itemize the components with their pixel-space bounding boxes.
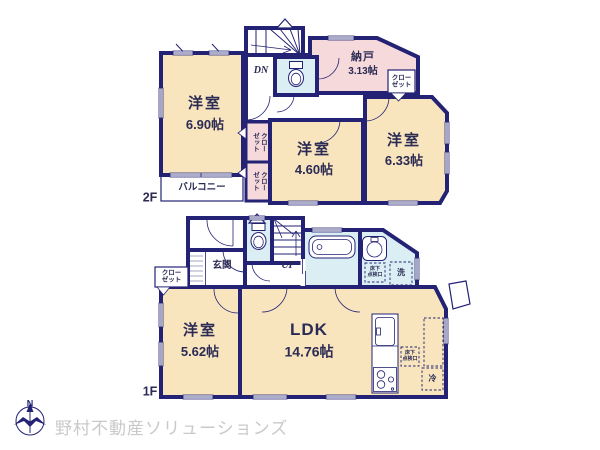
hatch-ldk-line2: 点検口: [402, 356, 417, 362]
floor-label-1f: 1F: [143, 385, 158, 398]
room-label-ldk: LDK: [290, 321, 328, 339]
bathtub-icon: [309, 236, 355, 258]
closet-label-2f-b: クロー ゼット: [251, 171, 266, 191]
bedroom-633: [365, 97, 447, 203]
washbasin-icon: [363, 237, 387, 261]
room-label-2f-yoshitsu-460: 洋室: [297, 142, 331, 158]
compass-north-label: N: [27, 399, 34, 408]
ldk-room: [240, 287, 446, 397]
closet-a-line1: クロー: [259, 132, 266, 152]
company-logo-text: 野村不動産ソリューションズ: [55, 414, 288, 439]
genkan-label: 玄関: [212, 261, 231, 271]
closet-b-line1: クロー: [259, 171, 266, 191]
room-size-2f-yoshitsu-460: 4.60帖: [295, 163, 333, 177]
balcony-label: バルコニー: [178, 183, 225, 193]
door-fold-marker-stairs-2f: [277, 19, 293, 28]
room-size-nando: 3.13帖: [348, 67, 377, 78]
exterior-door-leaf: [449, 281, 470, 309]
closet-a-line2: ゼット: [251, 132, 258, 152]
hatch-washroom-line2: 点検口: [367, 272, 382, 278]
laundry-label: 洗: [397, 269, 405, 277]
entrance-porch: [188, 218, 245, 250]
closet-label-2f-right: クロー ゼット: [392, 74, 412, 89]
hall-1f: [245, 263, 305, 287]
underfloor-hatch-label-washroom: 床下 点検口: [367, 266, 382, 278]
closet-label-2f-right-line1: クロー: [392, 74, 412, 81]
closet-1f-line1: クロー: [162, 270, 182, 277]
room-label-2f-yoshitsu-690: 洋室: [188, 96, 222, 112]
closet-label-1f: クロー ゼット: [162, 270, 182, 285]
closet-1f-line2: ゼット: [162, 277, 182, 284]
room-size-2f-yoshitsu-690: 6.90帖: [186, 118, 224, 132]
floorplan-drawing: [0, 0, 600, 450]
room-size-2f-yoshitsu-633: 6.33帖: [385, 154, 423, 168]
room-size-ldk: 14.76帖: [284, 345, 333, 360]
floor-1f-shapes: [155, 214, 470, 399]
bedroom-562: [161, 287, 240, 397]
room-size-1f-yoshitsu-562: 5.62帖: [181, 345, 219, 359]
fridge-label: 冷: [429, 375, 437, 383]
toilet-icon-2f: [289, 62, 304, 87]
closet-label-2f-a: クロー ゼット: [251, 132, 266, 152]
underfloor-hatch-label-ldk: 床下 点検口: [402, 350, 417, 362]
bath-door-slider: [301, 259, 306, 286]
room-label-2f-yoshitsu-633: 洋室: [387, 133, 421, 149]
closet-label-2f-right-line2: ゼット: [392, 82, 412, 89]
bedroom-690: [161, 53, 243, 175]
toilet-icon-1f: [251, 224, 266, 250]
floor-label-2f: 2F: [143, 191, 158, 204]
room-label-1f-yoshitsu-562: 洋室: [183, 323, 217, 339]
kitchen-unit: [372, 314, 398, 393]
stairs-label-dn: DN: [254, 66, 268, 77]
floorplan-canvas: 2F DN 洋室 6.90帖 洋室 4.60帖 洋室 6.33帖 納戸 3.13…: [0, 0, 600, 450]
stairs-label-up: UP: [281, 261, 294, 272]
room-label-nando: 納戸: [351, 52, 375, 64]
closet-b-line2: ゼット: [251, 171, 258, 191]
